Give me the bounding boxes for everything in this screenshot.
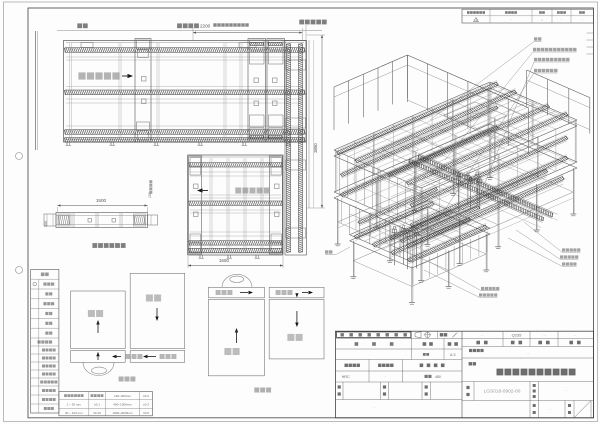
svg-text:·: · [510,17,511,22]
svg-text:LGS018-0902-00: LGS018-0902-00 [484,389,521,395]
svg-text:·: · [543,333,544,338]
svg-text:HRC: HRC [342,375,350,379]
svg-text:1 ~ 30 mm: 1 ~ 30 mm [67,403,82,407]
svg-text:400~1000mm: 400~1000mm [113,403,132,407]
svg-text:±0.2: ±0.2 [143,394,149,398]
svg-text:·: · [581,17,582,22]
svg-text:2200: 2200 [200,24,211,29]
svg-text:·: · [385,374,386,379]
svg-text:1650: 1650 [219,258,230,263]
svg-text:480: 480 [435,375,441,379]
svg-text:±0.3: ±0.3 [143,403,149,407]
svg-text:Q235: Q235 [512,332,523,337]
svg-text:·: · [591,409,592,413]
svg-text:·: · [527,351,528,356]
svg-text:±0.15: ±0.15 [93,411,101,415]
svg-text:±0.1: ±0.1 [94,403,100,407]
svg-text:1500: 1500 [96,198,107,203]
svg-text:•: • [541,18,542,22]
svg-text:300: 300 [44,221,48,227]
svg-text:30 ~ 120 mm: 30 ~ 120 mm [65,411,83,415]
svg-text:·: · [373,405,374,410]
svg-text:·: · [561,17,562,22]
svg-text:1000~2000mm: 1000~2000mm [112,411,133,415]
svg-text:·: · [565,388,566,393]
svg-text:120~400mm: 120~400mm [114,394,131,398]
svg-text:A 3: A 3 [450,353,456,357]
svg-text:·: · [574,333,575,338]
svg-text:·: · [481,333,482,338]
svg-text:±0.5: ±0.5 [143,411,149,415]
svg-text:·: · [549,407,550,412]
